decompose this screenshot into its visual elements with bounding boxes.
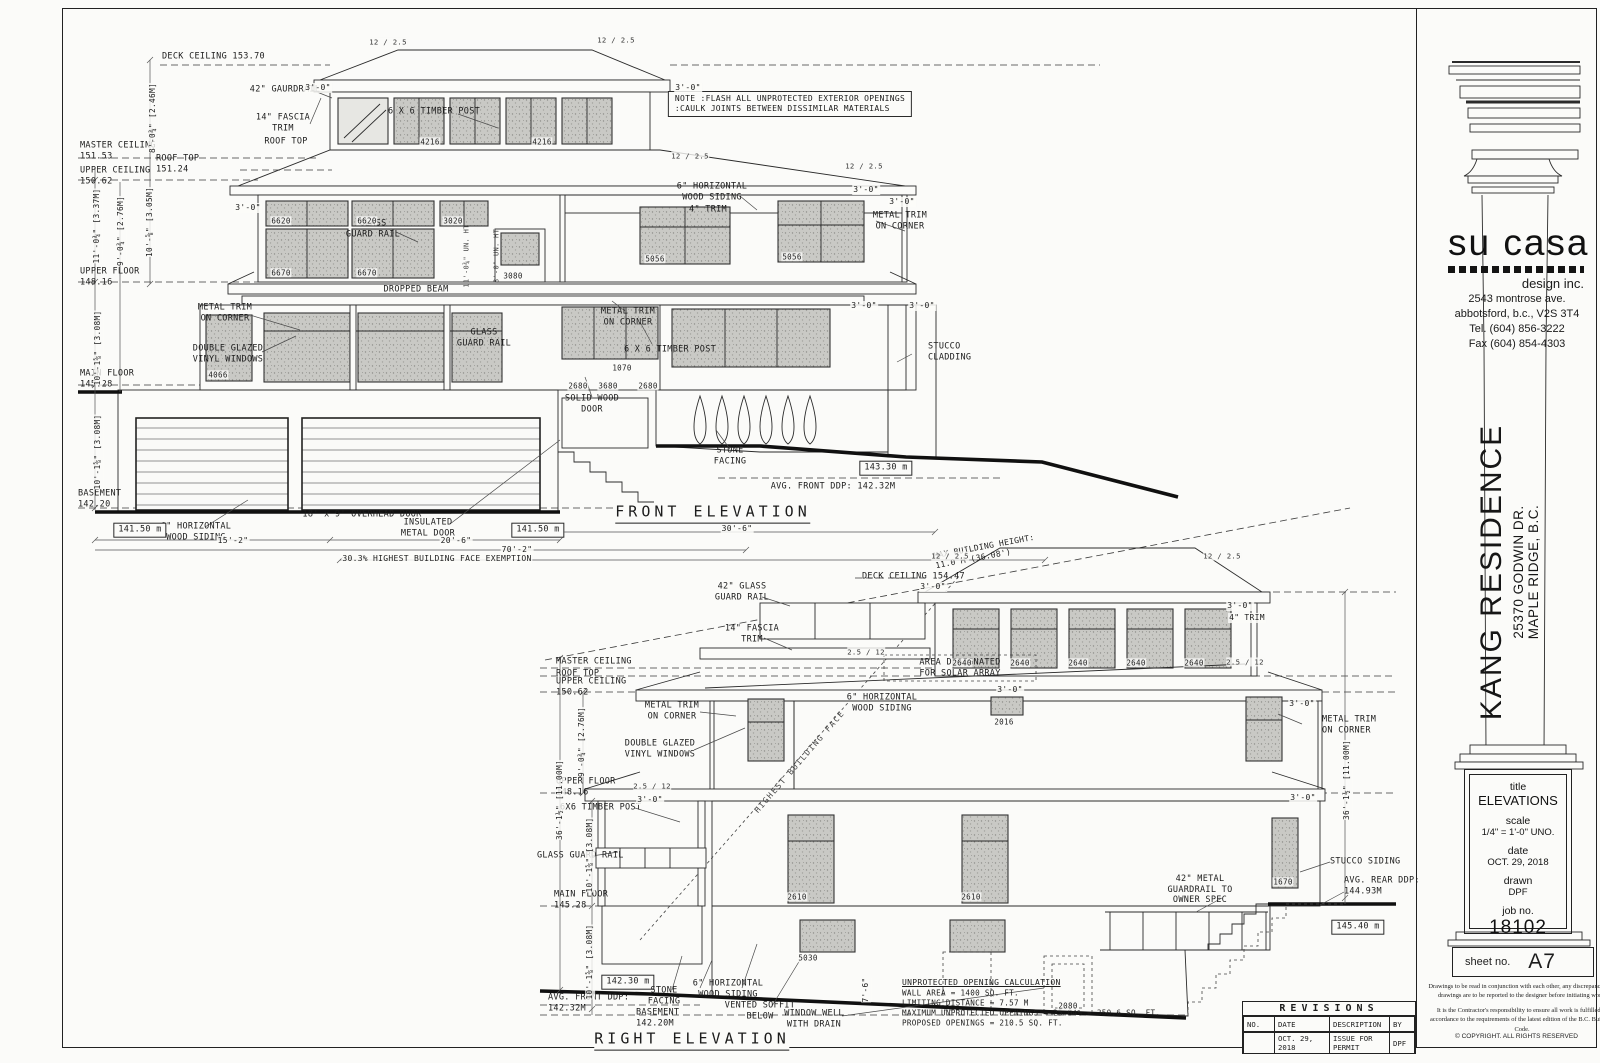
front-annotation-30: 15'-2" [217,536,250,546]
project-address-line2: MAPLE RIDGE, B.C. [1526,505,1541,640]
front-annotation-44: 6670 [356,268,377,277]
front-annotation-45: 3080 [502,271,523,280]
right-annotation-41: 2080 [1057,1001,1078,1010]
front-annotation-41: 6620 [356,216,377,225]
right-elevation-drawing [540,508,1396,1018]
front-annotation-58: 10'-1⅝" [3.08M] [93,415,103,490]
right-annotation-34: 2640 [1067,658,1088,667]
front-annotation-40: 6620 [270,216,291,225]
right-annotation-14: 6X6 TIMBER POST [560,803,641,814]
revisions-title: REVISIONS [1243,1002,1415,1016]
right-annotation-29: WALL AREA = 1400 SQ. FT. LIMITING DISTAN… [902,988,1160,1027]
front-annotation-49: 1070 [611,363,632,372]
general-note-1: Drawings to be read in conjunction with … [1427,982,1600,1001]
front-annotation-20: GLASS GUARD RAIL [457,327,511,348]
front-annotation-39: 4216 [531,137,552,146]
revision-description: ISSUE FOR PERMIT [1330,1032,1390,1053]
right-annotation-46: 10'-1⅝" [3.08M] [585,818,595,893]
front-annotation-29: 141.50 m [511,523,564,538]
field-title-value: ELEVATIONS [1472,793,1564,808]
sheet-number-label: sheet no. [1465,956,1510,968]
right-annotation-39: 2610 [960,892,981,901]
general-note-2: It is the Contractor's responsibility to… [1427,1006,1600,1034]
right-annotation-31: RIGHT ELEVATION [594,1030,789,1051]
right-annotation-47: 10'-1⅝" [3.08M] [585,925,595,1000]
right-annotation-17: 4" TRIM [1228,613,1266,623]
right-annotation-44: 36'-1½" [11.00M] [1342,740,1352,820]
front-annotation-21: METAL TRIM ON CORNER [601,306,655,327]
field-drawn-label: drawn [1472,875,1564,887]
field-date-label: date [1472,845,1564,857]
front-annotation-52: 2680 [637,381,658,390]
right-annotation-57: 2.5 / 12 [847,647,885,656]
right-annotation-20: AVG. REAR DDP: 144.93M [1344,875,1420,896]
right-annotation-13: DOUBLE GLAZED VINYL WINDOWS [625,738,695,759]
front-annotation-42: 3020 [442,216,463,225]
revisions-col-description: DESCRIPTION [1330,1017,1390,1033]
front-annotation-43: 6670 [270,268,291,277]
front-annotation-17: METAL TRIM ON CORNER [198,302,252,323]
titleblock-fields-box: title ELEVATIONS scale 1/4" = 1'-0" UNO.… [1464,769,1572,934]
right-annotation-42: 1670 [1272,877,1293,886]
front-annotation-60: 8'-0" UN. HT [493,229,502,283]
front-annotation-6: BASEMENT 142.20 [78,488,121,509]
front-annotation-28: 141.50 m [113,523,166,538]
front-annotation-69: 3'-0" [850,301,878,311]
right-annotation-35: 2640 [1125,658,1146,667]
front-annotation-31: 20'-6" [440,536,473,546]
field-title-label: title [1472,781,1564,793]
right-annotation-55: 12 / 2.5 [931,551,969,560]
revisions-col-no: NO. [1244,1017,1275,1033]
right-annotation-50: 3'-0" [1226,601,1254,611]
right-annotation-9: 14" FASCIA TRIM [725,623,779,644]
front-annotation-56: 10'-⅝" [3.05M] [145,187,155,257]
front-annotation-51: 3680 [597,381,618,390]
front-annotation-68: 3'-0" [888,197,916,207]
firm-address: 2543 montrose ave. abbotsford, b.c., V2S… [1432,292,1600,351]
drawing-sheet: DECK CEILING 153.70MASTER CEILING 151.53… [0,0,1600,1063]
right-annotation-7: BASEMENT 142.20M [636,1007,679,1028]
revisions-col-by: BY [1390,1017,1415,1033]
project-title-rotated: KANG RESIDENCE 25370 GODWIN DR. MAPLE RI… [1475,424,1541,720]
logo-dotted-rule [1448,266,1584,273]
right-annotation-54: 3'-0" [996,685,1024,695]
right-annotation-25: 6" HORIZONTAL WOOD SIDING [693,978,763,999]
right-annotation-11: 6" HORIZONTAL WOOD SIDING [847,692,917,713]
right-annotation-28: UNPROTECTED OPENING CALCULATION [902,978,1061,988]
right-annotation-23: STONE FACING [648,985,681,1006]
revision-by: DPF [1390,1032,1415,1053]
front-annotation-67: 3'-0" [852,185,880,195]
front-annotation-35: AVG. FRONT DDP: 142.32M [771,482,896,493]
front-annotation-5: MAIN FLOOR 145.28 [80,368,134,389]
front-annotation-47: 5056 [781,252,802,261]
right-annotation-36: 2640 [1183,658,1204,667]
front-annotation-0: DECK CEILING 153.70 [162,52,265,63]
right-annotation-16: METAL TRIM ON CORNER [1322,714,1376,735]
elevation-linework [0,0,1600,1063]
front-annotation-19: 6 X 6 TIMBER POST [624,345,716,356]
front-annotation-53: 8'-0¾" [2.46M] [148,83,158,153]
revision-date: OCT. 29, 2018 [1275,1032,1330,1053]
front-annotation-12: 6" HORIZONTAL WOOD SIDING [677,181,747,202]
right-annotation-4: UPPER CEILING 150.62 [556,676,626,697]
front-annotation-50: 2680 [567,381,588,390]
right-annotation-37: 2016 [993,717,1014,726]
right-annotation-32: 2640 [951,658,972,667]
front-annotation-23: SOLID WOOD DOOR [565,393,619,414]
front-annotation-14: METAL TRIM ON CORNER [873,210,927,231]
right-annotation-40: 5030 [797,953,818,962]
right-annotation-21: 145.40 m [1331,920,1384,935]
revisions-col-date: DATE [1275,1017,1330,1033]
front-annotation-34: 30.3% HIGHEST BUILDING FACE EXEMPTION [341,554,532,564]
front-annotation-3: UPPER CEILING 150.62 [80,165,150,186]
project-name: KANG RESIDENCE [1475,424,1509,720]
right-annotation-43: 36'-1½" [11.00M] [555,760,565,840]
right-annotation-5: UPPER FLOOR 148.16 [556,776,616,797]
front-annotation-1: MASTER CEILING 151.53 [80,140,156,161]
revision-row: OCT. 29, 2018 ISSUE FOR PERMIT DPF [1244,1032,1415,1053]
field-drawn-value: DPF [1472,887,1564,898]
right-annotation-22: 142.30 m [601,975,654,990]
front-annotation-63: 12 / 2.5 [671,151,709,160]
front-annotation-4: UPPER FLOOR 148.16 [80,266,140,287]
right-annotation-8: 42" GLASS GUARD RAIL [715,581,769,602]
right-annotation-45: 9'-0¾" [2.76M] [577,707,587,777]
front-annotation-38: 4216 [419,137,440,146]
front-annotation-54: 11'-0¾" [3.37M] [92,189,102,264]
right-annotation-6: MAIN FLOOR 145.28 [554,889,608,910]
copyright-line: © COPYRIGHT. ALL RIGHTS RESERVED [1455,1033,1578,1040]
front-annotation-65: 3'-0" [304,83,332,93]
right-annotation-56: 12 / 2.5 [1203,551,1241,560]
right-annotation-27: WINDOW WELL WITH DRAIN [784,1008,844,1029]
logo-tagline: design inc. [1448,276,1584,291]
front-annotation-61: 12 / 2.5 [369,37,407,46]
revision-no [1244,1032,1275,1053]
right-annotation-12: METAL TRIM ON CORNER [645,700,699,721]
right-annotation-2: MASTER CEILING [556,657,632,668]
front-annotation-13: 4" TRIM [689,205,727,216]
field-date-value: OCT. 29, 2018 [1472,857,1564,868]
right-annotation-49: 3'-0" [919,582,947,592]
project-address-line1: 25370 GODWIN DR. [1511,505,1526,638]
front-annotation-2: ROOF TOP 151.24 [156,153,199,174]
front-annotation-55: 9'-0¾" [2.76M] [116,196,126,266]
front-annotation-9: ROOF TOP [264,137,307,148]
revisions-table: REVISIONS NO. DATE DESCRIPTION BY OCT. 2… [1242,1001,1416,1054]
front-annotation-33: 30'-6" [721,524,754,534]
front-annotation-64: 12 / 2.5 [845,161,883,170]
front-annotation-37: FRONT ELEVATION [615,503,810,524]
right-annotation-53: 3'-0" [1289,793,1317,803]
front-annotation-70: 3'-0" [908,301,936,311]
front-annotation-57: 10'-1⅝" [3.08M] [93,311,103,386]
front-annotation-8: 14" FASCIA TRIM [256,112,310,133]
sheet-number-box: sheet no. A7 [1452,947,1594,977]
front-annotation-59: 11'-0¾" UN. HT [463,224,472,287]
field-jobno-value: 18102 [1472,917,1564,939]
right-annotation-33: 2640 [1009,658,1030,667]
right-annotation-18: STUCCO SIDING [1330,857,1400,868]
field-scale-value: 1/4" = 1'-0" UNO. [1472,827,1564,838]
front-annotation-22: STUCCO CLADDING [928,341,971,362]
right-annotation-48: 7'-6" [861,978,871,1003]
front-annotation-46: 5056 [644,254,665,263]
right-annotation-19: 42" METAL GUARDRAIL TO OWNER SPEC [1167,874,1232,906]
front-annotation-48: 4066 [207,370,228,379]
right-annotation-58: 2.5 / 12 [1226,657,1264,666]
right-annotation-52: 3'-0" [636,795,664,805]
right-annotation-1: DECK CEILING 154.47 [862,572,965,583]
front-annotation-18: DOUBLE GLAZED VINYL WINDOWS [193,343,263,364]
front-annotation-66: 3'-0" [674,83,702,93]
field-scale-label: scale [1472,815,1564,827]
front-annotation-36: 143.30 m [859,461,912,476]
front-annotation-10: NOTE :FLASH ALL UNPROTECTED EXTERIOR OPE… [668,91,912,117]
field-jobno-label: job no. [1472,905,1564,917]
right-annotation-38: 2610 [786,892,807,901]
front-annotation-16: DROPPED BEAM [383,285,448,296]
front-annotation-24: STONE FACING [714,445,747,466]
front-annotation-71: 3'-0" [234,203,262,213]
sheet-number-value: A7 [1528,950,1556,974]
logo-text: su casa [1448,222,1590,264]
revisions-header-row: NO. DATE DESCRIPTION BY [1244,1017,1415,1033]
right-annotation-59: 2.5 / 12 [633,781,671,790]
front-annotation-62: 12 / 2.5 [597,35,635,44]
right-annotation-51: 3'-0" [1288,699,1316,709]
right-annotation-15: GLASS GUARD RAIL [537,851,624,862]
front-annotation-11: 6 X 6 TIMBER POST [388,107,480,118]
